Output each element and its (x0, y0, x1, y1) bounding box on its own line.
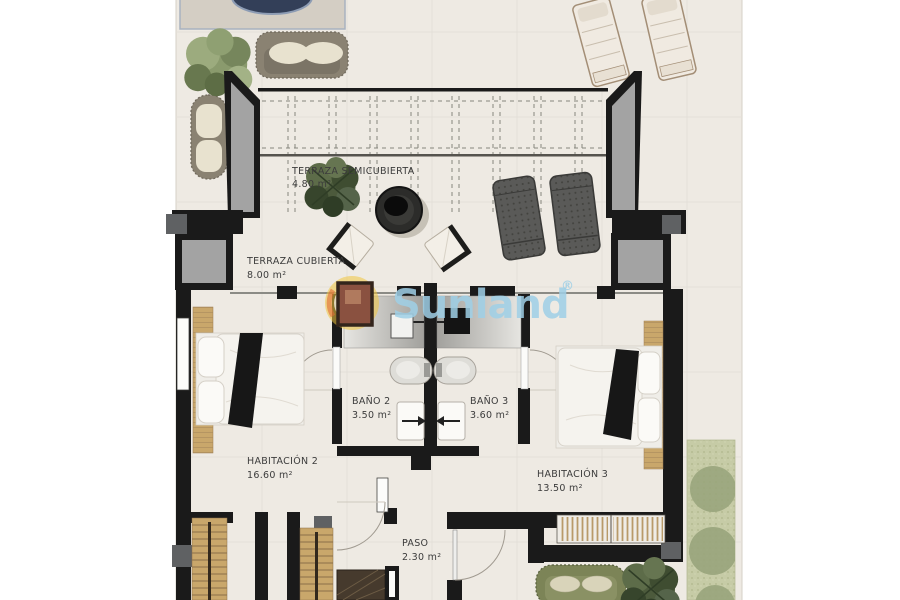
window-left-bedroom (177, 318, 189, 390)
stair-down-dark (337, 566, 399, 600)
label-terraza-cubierta: TERRAZA CUBIERTA (246, 256, 346, 267)
entry-cabinet (338, 283, 372, 325)
label-terraza-semicubierta-area: 4.80 m² (292, 179, 331, 190)
label-terraza-cubierta-area: 8.00 m² (247, 270, 286, 281)
label-habitacion3: HABITACIÓN 3 (537, 468, 608, 480)
floor-plan-drawing: TERRAZA SEMICUBIERTA 4.80 m² TERRAZA CUB… (0, 0, 900, 600)
label-habitacion3-area: 13.50 m² (537, 483, 583, 494)
wall-block-wardrobe (661, 542, 681, 559)
patio-with-spa (180, 0, 345, 29)
floor-plan-page: TERRAZA SEMICUBIERTA 4.80 m² TERRAZA CUB… (0, 0, 900, 600)
garden-strip (687, 440, 737, 600)
label-bano2-area: 3.50 m² (352, 410, 391, 421)
wall-block-left-low (172, 545, 192, 567)
staircase-2 (300, 528, 333, 600)
pillar-left (182, 240, 226, 283)
corner-block-left (166, 214, 187, 234)
label-paso: PASO (402, 538, 428, 549)
label-bano3: BAÑO 3 (470, 396, 508, 407)
staircase-1 (192, 518, 227, 600)
watermark-brand: Sunland (392, 282, 569, 328)
garden-bush (689, 527, 737, 575)
garden-sofa (536, 565, 626, 600)
outdoor-armchair-left (191, 95, 227, 179)
pillar-right (618, 240, 663, 283)
window-paso (377, 478, 388, 512)
label-terraza-semicubierta: TERRAZA SEMICUBIERTA (291, 166, 415, 177)
corner-block-right (662, 215, 681, 234)
watermark: Sunland ® (392, 279, 574, 328)
table-hat (384, 196, 408, 216)
label-habitacion2: HABITACIÓN 2 (247, 455, 318, 467)
garden-bush (690, 466, 736, 512)
sun-lounger-dark-2 (549, 172, 600, 257)
wardrobe (557, 515, 665, 543)
label-bano2: BAÑO 2 (352, 396, 390, 407)
watermark-registered: ® (561, 279, 574, 294)
toilet-bano3 (436, 402, 465, 440)
label-bano3-area: 3.60 m² (470, 410, 509, 421)
toilet-bano2 (397, 402, 426, 440)
label-paso-area: 2.30 m² (402, 552, 441, 563)
outdoor-sofa-top (256, 32, 348, 78)
label-habitacion2-area: 16.60 m² (247, 470, 293, 481)
